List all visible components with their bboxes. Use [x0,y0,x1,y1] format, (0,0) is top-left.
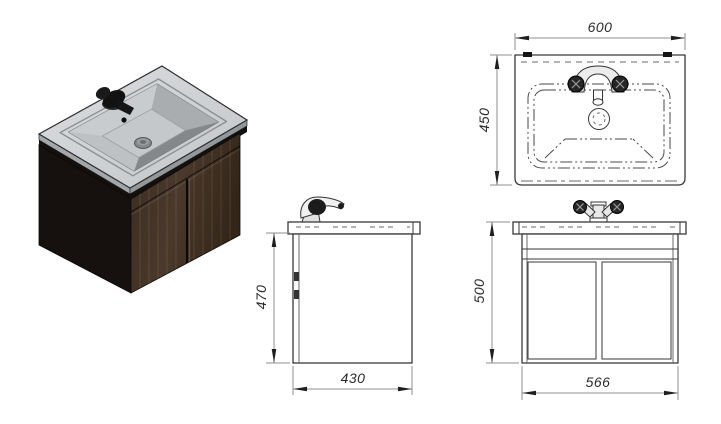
side-counter [288,222,420,234]
top-view [490,33,685,185]
dim-label-front-height: 500 [471,279,487,304]
faucet-front-icon [574,201,624,223]
side-cabinet [293,234,412,363]
front-view [486,201,686,401]
dim-600-group [515,33,685,50]
faucet-side-icon [301,197,344,222]
dim-label-top-width: 600 [588,19,613,35]
dim-label-side-depth: 430 [341,370,366,386]
hinge-lower [294,290,299,299]
dim-label-top-depth: 450 [476,108,492,133]
front-counter [513,222,686,234]
side-view [266,197,420,395]
vanity-technical-drawing: 600 450 470 430 500 566 [0,0,721,424]
drawing-svg [0,0,721,424]
drain-top-icon [589,109,610,130]
front-door-right [602,262,671,359]
dim-label-side-height: 470 [253,285,269,310]
dim-label-front-width: 566 [586,374,611,390]
dim-500-group [486,222,519,363]
iso-view [39,66,247,295]
overflow-hole [121,117,126,122]
wall-bracket-right [663,52,672,57]
wall-bracket-left [523,52,532,57]
hinge-upper [294,272,299,281]
front-door-left [528,262,596,359]
dim-470-group [266,233,290,363]
dim-450-group [490,55,512,185]
